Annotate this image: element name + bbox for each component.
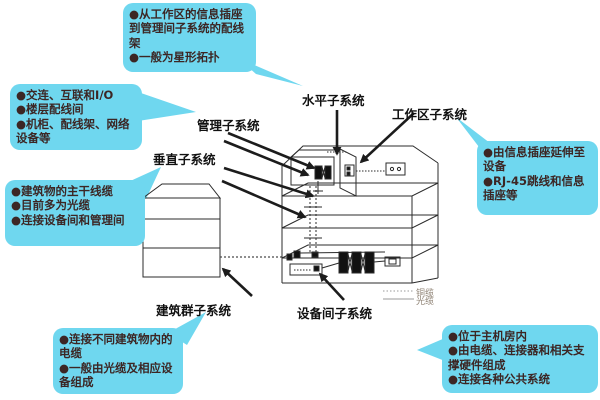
left-building-drawing (143, 184, 220, 277)
equipment-cabinet-icon (365, 252, 374, 273)
equipment-subsystem-arrow (320, 274, 344, 300)
callout-text: ●交连、互联和I/O (16, 88, 136, 102)
campus-subsystem-arrow (223, 269, 252, 296)
callout-tail (138, 92, 196, 121)
callout-text: ●从工作区的信息插座到管理间子系统的配线架 (129, 7, 250, 50)
equipment-cabinet-icon (352, 252, 361, 273)
info-outlet-plate-icon (386, 163, 405, 175)
equipment-cabinet-icon (339, 252, 348, 273)
equipment-room-interior (287, 251, 400, 275)
callout-text: ●一般为星形拓扑 (129, 50, 250, 64)
label-equipment-subsystem: 设备间子系统 (297, 303, 372, 322)
vertical-subsystem-arrow (222, 181, 305, 217)
callout-vertical-subsystem: ●建筑物的主干线缆 ●目前多为光缆 ●连接设备间和管理间 (5, 180, 145, 246)
callout-management-subsystem: ●交连、互联和I/O ●楼层配线间 ●机柜、配线架、网络设备等 (10, 84, 142, 150)
label-workarea-subsystem: 工作区子系统 (392, 104, 467, 123)
top-floor-interior (291, 149, 405, 196)
label-horizontal-subsystem: 水平子系统 (302, 90, 365, 109)
cabling-subsystem-diagram: ●从工作区的信息插座到管理间子系统的配线架 ●一般为星形拓扑 ●交连、互联和I/… (0, 0, 600, 400)
callout-text: ●楼层配线间 (16, 102, 136, 116)
callout-text: ●连接不同建筑物内的电缆 (59, 332, 177, 361)
callout-campus-subsystem: ●连接不同建筑物内的电缆 ●一般由光缆及相应设备组成 (53, 328, 183, 394)
callout-text: ●建筑物的主干线缆 (11, 184, 139, 198)
callout-workarea-subsystem: ●由信息插座延伸至设备 ●RJ-45跳线和信息插座等 (477, 141, 598, 215)
callout-text: ●机柜、配线架、网络设备等 (16, 117, 136, 146)
callout-text: ●位于主机房内 (448, 329, 592, 343)
callout-text: ●由信息插座延伸至设备 (483, 145, 592, 174)
callout-text: ●一般由光缆及相应设备组成 (59, 361, 177, 390)
patch-panel-icon (325, 166, 331, 179)
callout-horizontal-subsystem: ●从工作区的信息插座到管理间子系统的配线架 ●一般为星形拓扑 (123, 3, 256, 72)
callout-equipment-subsystem: ●位于主机房内 ●由电缆、连接器和相关支撑硬件组成 ●连接各种公共系统 (442, 325, 598, 393)
legend-fiber-label: 光缆 (416, 294, 434, 307)
callout-text: ●连接设备间和管理间 (11, 213, 139, 227)
callout-text: ●连接各种公共系统 (448, 372, 592, 386)
label-vertical-subsystem: 垂直子系统 (153, 149, 216, 168)
callout-text: ●目前多为光缆 (11, 198, 139, 212)
callout-text: ●由电缆、连接器和相关支撑硬件组成 (448, 343, 592, 372)
label-campus-subsystem: 建筑群子系统 (156, 300, 231, 319)
legend-lines (383, 291, 414, 299)
label-management-subsystem: 管理子系统 (197, 115, 260, 134)
management-subsystem-arrow (224, 141, 308, 175)
patch-panel-icon (315, 166, 322, 179)
callout-text: ●RJ-45跳线和信息插座等 (483, 174, 592, 203)
callout-tail (417, 338, 445, 361)
